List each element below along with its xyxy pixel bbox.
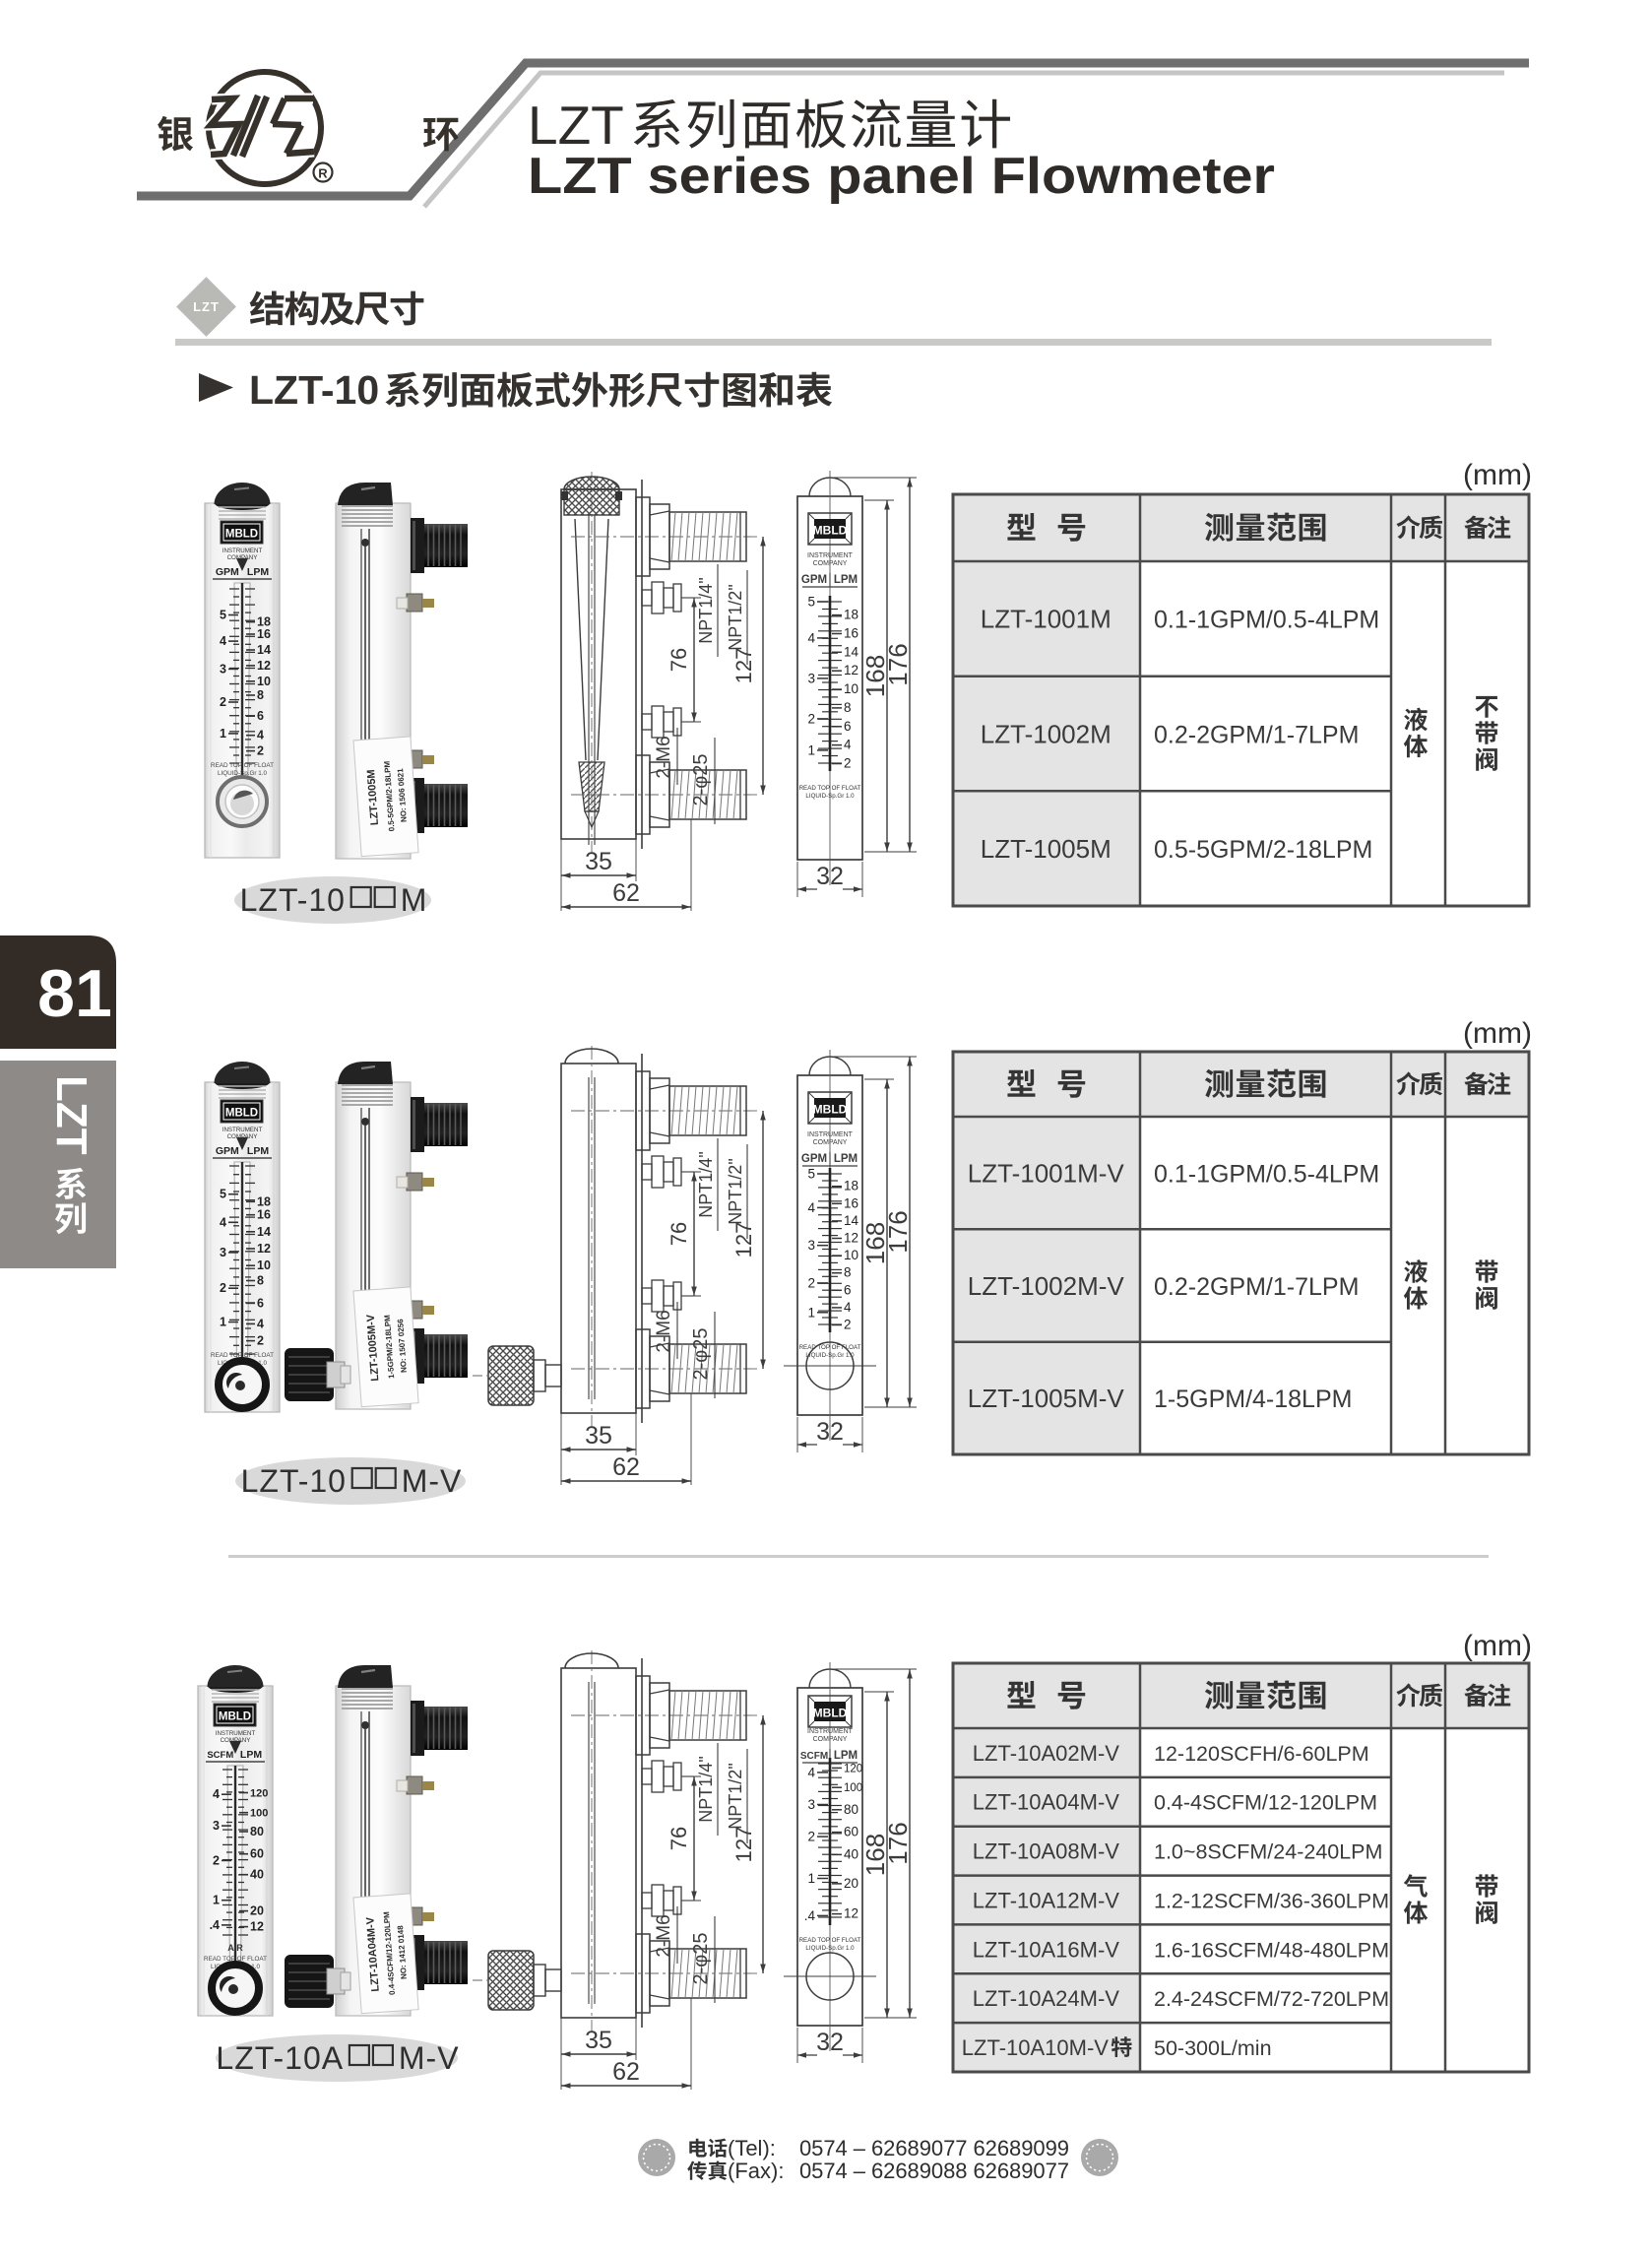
svg-text:SCFM: SCFM: [800, 1751, 828, 1762]
svg-text:16: 16: [257, 627, 271, 641]
svg-text:8: 8: [844, 1265, 852, 1280]
svg-text:GPM: GPM: [801, 574, 827, 586]
svg-text:14: 14: [257, 1225, 271, 1239]
svg-text:LZT-10A24M-V: LZT-10A24M-V: [973, 1986, 1119, 2011]
svg-text:2.4-24SCFM/72-720LPM: 2.4-24SCFM/72-720LPM: [1154, 1987, 1389, 2011]
svg-text:8: 8: [257, 688, 264, 702]
svg-text:3: 3: [213, 1819, 220, 1833]
svg-text:INSTRUMENT: INSTRUMENT: [222, 1127, 263, 1133]
svg-text:0574 – 62689088 62689077: 0574 – 62689088 62689077: [799, 2159, 1069, 2183]
svg-text:1: 1: [807, 742, 815, 757]
svg-text:3: 3: [807, 1797, 815, 1812]
svg-text:0.2-2GPM/1-7LPM: 0.2-2GPM/1-7LPM: [1154, 721, 1359, 748]
svg-text:2-M6: 2-M6: [654, 1914, 674, 1957]
svg-text:1: 1: [807, 1305, 815, 1320]
svg-text:COMPANY: COMPANY: [813, 1139, 848, 1146]
svg-text:18: 18: [844, 1179, 858, 1193]
svg-text:100: 100: [250, 1808, 268, 1820]
svg-text:COMPANY: COMPANY: [813, 560, 848, 567]
svg-text:INSTRUMENT: INSTRUMENT: [807, 1131, 854, 1138]
svg-text:12: 12: [250, 1920, 264, 1934]
svg-text:127: 127: [731, 648, 756, 684]
svg-text:1: 1: [807, 1871, 815, 1886]
svg-text:COMPANY: COMPANY: [813, 1736, 848, 1743]
svg-text:4: 4: [844, 1300, 852, 1315]
svg-text:6: 6: [844, 1282, 852, 1297]
svg-text:LZT-10: LZT-10: [249, 367, 379, 413]
svg-text:62: 62: [612, 1453, 640, 1481]
svg-text:MBLD: MBLD: [225, 529, 258, 541]
svg-text:12: 12: [257, 659, 271, 673]
svg-text:LZT-1002M: LZT-1002M: [981, 719, 1112, 748]
svg-text:2-φ25: 2-φ25: [690, 1933, 712, 1985]
svg-text:2: 2: [807, 711, 815, 726]
svg-text:LZT-10A08M-V: LZT-10A08M-V: [973, 1839, 1119, 1864]
svg-text:3: 3: [807, 671, 815, 685]
svg-text:10: 10: [844, 681, 858, 696]
svg-text:M-V: M-V: [402, 1463, 463, 1499]
svg-text:SCFM: SCFM: [207, 1750, 233, 1761]
svg-text:80: 80: [844, 1802, 858, 1817]
svg-text:.4: .4: [804, 1908, 816, 1923]
svg-text:1: 1: [213, 1894, 220, 1907]
svg-text:127: 127: [731, 1827, 756, 1863]
svg-text:60: 60: [250, 1847, 264, 1861]
svg-text:0.1-1GPM/0.5-4LPM: 0.1-1GPM/0.5-4LPM: [1154, 607, 1379, 634]
svg-text:NPT1/4": NPT1/4": [696, 1151, 716, 1217]
svg-text:LIQUID-Sp.Gr 1.0: LIQUID-Sp.Gr 1.0: [805, 793, 855, 800]
svg-text:14: 14: [257, 643, 271, 657]
svg-text:8: 8: [844, 700, 852, 715]
svg-text:16: 16: [844, 1195, 858, 1210]
svg-text:4: 4: [213, 1787, 220, 1801]
svg-text:12: 12: [844, 1906, 858, 1921]
svg-text:INSTRUMENT: INSTRUMENT: [222, 548, 263, 554]
svg-text:80: 80: [250, 1825, 264, 1838]
svg-text:35: 35: [585, 848, 612, 875]
svg-text:(mm): (mm): [1463, 1017, 1532, 1050]
svg-text:81: 81: [37, 956, 112, 1031]
svg-text:5: 5: [220, 609, 226, 622]
svg-text:4: 4: [844, 738, 852, 752]
svg-text:35: 35: [585, 1422, 612, 1450]
svg-text:10: 10: [257, 1258, 271, 1272]
svg-text:50-300L/min: 50-300L/min: [1154, 2036, 1272, 2060]
svg-text:2: 2: [807, 1830, 815, 1844]
svg-text:GPM: GPM: [216, 1145, 239, 1157]
svg-text:2-φ25: 2-φ25: [690, 754, 712, 806]
svg-text:176: 176: [883, 1822, 913, 1864]
svg-text:5: 5: [220, 1188, 226, 1201]
svg-text:3: 3: [220, 662, 226, 676]
svg-text:176: 176: [883, 643, 913, 685]
svg-text:GPM: GPM: [216, 566, 239, 578]
svg-text:LPM: LPM: [834, 1153, 858, 1165]
svg-text:LZT-10A: LZT-10A: [216, 2040, 344, 2076]
svg-text:0.4-4SCFM/12-120LPM: 0.4-4SCFM/12-120LPM: [1154, 1791, 1377, 1815]
svg-text:127: 127: [731, 1222, 756, 1258]
svg-text:12-120SCFH/6-60LPM: 12-120SCFH/6-60LPM: [1154, 1742, 1369, 1766]
svg-text:4: 4: [807, 1200, 815, 1215]
svg-text:MBLD: MBLD: [813, 524, 848, 538]
svg-text:2-M6: 2-M6: [654, 736, 674, 778]
svg-text:INSTRUMENT: INSTRUMENT: [216, 1730, 256, 1737]
svg-text:60: 60: [844, 1825, 858, 1839]
svg-text:18: 18: [257, 1194, 271, 1208]
svg-text:6: 6: [257, 709, 264, 723]
svg-text:NPT1/2": NPT1/2": [726, 1763, 745, 1829]
svg-text:0574 – 62689077 62689099: 0574 – 62689077 62689099: [799, 2136, 1069, 2160]
svg-text:4: 4: [807, 1765, 815, 1779]
svg-text:35: 35: [585, 2027, 612, 2054]
svg-text:LZT-1005M-V: LZT-1005M-V: [968, 1384, 1125, 1413]
svg-text:4: 4: [220, 1215, 226, 1229]
svg-text:.4: .4: [210, 1918, 220, 1932]
svg-text:6: 6: [257, 1296, 264, 1310]
svg-text:NPT1/2": NPT1/2": [726, 584, 745, 650]
svg-text:LZT-10: LZT-10: [241, 1463, 347, 1499]
svg-text:4: 4: [220, 634, 226, 648]
svg-text:LZT-10A02M-V: LZT-10A02M-V: [973, 1741, 1119, 1766]
svg-text:LZT-10A12M-V: LZT-10A12M-V: [973, 1888, 1119, 1912]
svg-text:2-φ25: 2-φ25: [690, 1328, 712, 1381]
svg-text:16: 16: [844, 626, 858, 641]
svg-text:MBLD: MBLD: [813, 1707, 848, 1720]
svg-text:16: 16: [257, 1208, 271, 1222]
svg-text:76: 76: [667, 1222, 691, 1246]
svg-text:MBLD: MBLD: [813, 1103, 848, 1117]
svg-text:1: 1: [220, 727, 226, 741]
svg-text:NPT1/4": NPT1/4": [696, 577, 716, 643]
svg-text:120: 120: [844, 1763, 862, 1774]
svg-text:2: 2: [844, 756, 852, 771]
svg-text:LZT-10: LZT-10: [240, 882, 346, 918]
svg-text:2: 2: [844, 1318, 852, 1332]
svg-text:LZT-1002M-V: LZT-1002M-V: [968, 1271, 1125, 1301]
svg-text:14: 14: [844, 644, 859, 659]
svg-text:2-M6: 2-M6: [654, 1310, 674, 1352]
svg-text:32: 32: [816, 863, 844, 890]
svg-text:LZT series panel Flowmeter: LZT series panel Flowmeter: [528, 148, 1275, 205]
svg-text:M: M: [401, 882, 428, 918]
svg-text:100: 100: [844, 1782, 862, 1794]
svg-text:1.6-16SCFM/48-480LPM: 1.6-16SCFM/48-480LPM: [1154, 1938, 1389, 1962]
svg-text:40: 40: [250, 1868, 264, 1882]
svg-text:4: 4: [807, 630, 815, 645]
svg-text:LZT-10A04M-V: LZT-10A04M-V: [973, 1790, 1119, 1815]
svg-text:0.2-2GPM/1-7LPM: 0.2-2GPM/1-7LPM: [1154, 1273, 1359, 1301]
svg-text:62: 62: [612, 879, 640, 907]
svg-text:2: 2: [220, 695, 226, 709]
svg-text:12: 12: [257, 1242, 271, 1256]
svg-text:INSTRUMENT: INSTRUMENT: [807, 552, 854, 559]
svg-text:10: 10: [257, 675, 271, 688]
svg-text:0.1-1GPM/0.5-4LPM: 0.1-1GPM/0.5-4LPM: [1154, 1161, 1379, 1189]
svg-text:LZT: LZT: [47, 1075, 95, 1155]
svg-text:READ TOP OF FLOAT: READ TOP OF FLOAT: [799, 1344, 861, 1351]
svg-text:GPM: GPM: [801, 1153, 827, 1165]
svg-text:76: 76: [667, 1827, 691, 1850]
svg-text:10: 10: [844, 1248, 858, 1262]
svg-text:8: 8: [257, 1274, 264, 1288]
svg-text:(mm): (mm): [1463, 459, 1532, 491]
svg-text:3: 3: [220, 1246, 226, 1259]
svg-text:(Fax):: (Fax):: [728, 2159, 784, 2183]
svg-text:6: 6: [844, 719, 852, 734]
svg-text:READ TOP OF FLOAT: READ TOP OF FLOAT: [799, 785, 861, 792]
svg-text:LPM: LPM: [834, 574, 858, 586]
svg-text:20: 20: [250, 1904, 264, 1918]
svg-text:4: 4: [257, 1317, 264, 1330]
svg-text:2: 2: [220, 1281, 226, 1295]
svg-text:12: 12: [844, 1231, 858, 1246]
svg-text:LZT-1001M: LZT-1001M: [981, 605, 1112, 634]
svg-text:READ TOP OF FLOAT: READ TOP OF FLOAT: [211, 762, 274, 769]
svg-text:1.0~8SCFM/24-240LPM: 1.0~8SCFM/24-240LPM: [1154, 1840, 1382, 1864]
svg-text:LPM: LPM: [247, 566, 269, 578]
svg-text:5: 5: [807, 1167, 815, 1182]
svg-text:LZT-10A10M-V: LZT-10A10M-V: [962, 2035, 1109, 2060]
svg-text:0.5-5GPM/2-18LPM: 0.5-5GPM/2-18LPM: [1154, 836, 1372, 864]
svg-text:LIQUID-Sp.Gr 1.0: LIQUID-Sp.Gr 1.0: [805, 1352, 855, 1359]
svg-text:NPT1/4": NPT1/4": [696, 1756, 716, 1822]
svg-text:2: 2: [213, 1853, 220, 1867]
svg-text:5: 5: [807, 595, 815, 610]
svg-text:LIQUID-Sp.Gr 1.0: LIQUID-Sp.Gr 1.0: [805, 1945, 855, 1952]
svg-text:AIR: AIR: [227, 1943, 243, 1953]
svg-text:32: 32: [816, 1418, 844, 1446]
svg-text:14: 14: [844, 1213, 859, 1228]
svg-text:LPM: LPM: [240, 1749, 262, 1761]
svg-text:MBLD: MBLD: [225, 1108, 258, 1120]
svg-text:176: 176: [883, 1210, 913, 1253]
svg-text:INSTRUMENT: INSTRUMENT: [807, 1728, 854, 1735]
svg-text:LPM: LPM: [834, 1750, 858, 1762]
svg-text:4: 4: [257, 729, 264, 742]
svg-text:1: 1: [220, 1316, 226, 1329]
svg-text:18: 18: [844, 608, 858, 622]
svg-text:62: 62: [612, 2058, 640, 2086]
svg-text:40: 40: [844, 1846, 858, 1861]
svg-text:LZT-1001M-V: LZT-1001M-V: [968, 1159, 1125, 1189]
svg-text:M-V: M-V: [399, 2040, 460, 2076]
svg-text:MBLD: MBLD: [219, 1711, 251, 1723]
svg-text:LZT: LZT: [193, 299, 220, 314]
svg-text:LZT-1005M: LZT-1005M: [981, 834, 1112, 864]
svg-text:1.2-12SCFM/36-360LPM: 1.2-12SCFM/36-360LPM: [1154, 1889, 1389, 1912]
svg-text:1-5GPM/4-18LPM: 1-5GPM/4-18LPM: [1154, 1386, 1352, 1413]
svg-text:LPM: LPM: [247, 1145, 269, 1157]
svg-text:32: 32: [816, 2029, 844, 2056]
svg-text:20: 20: [844, 1876, 858, 1891]
svg-text:2: 2: [807, 1275, 815, 1290]
svg-text:LZT: LZT: [528, 95, 624, 156]
svg-text:120: 120: [250, 1788, 268, 1800]
svg-text:76: 76: [667, 648, 691, 672]
svg-text:(Tel):: (Tel):: [728, 2136, 776, 2160]
svg-text:NPT1/2": NPT1/2": [726, 1158, 745, 1224]
svg-text:READ TOP OF FLOAT: READ TOP OF FLOAT: [799, 1937, 861, 1944]
svg-text:3: 3: [807, 1238, 815, 1253]
svg-text:2: 2: [257, 744, 264, 758]
svg-text:2: 2: [257, 1334, 264, 1348]
svg-text:12: 12: [844, 663, 858, 677]
svg-text:R: R: [318, 166, 328, 181]
svg-text:LZT-10A16M-V: LZT-10A16M-V: [973, 1937, 1119, 1962]
svg-text:(mm): (mm): [1463, 1630, 1532, 1662]
